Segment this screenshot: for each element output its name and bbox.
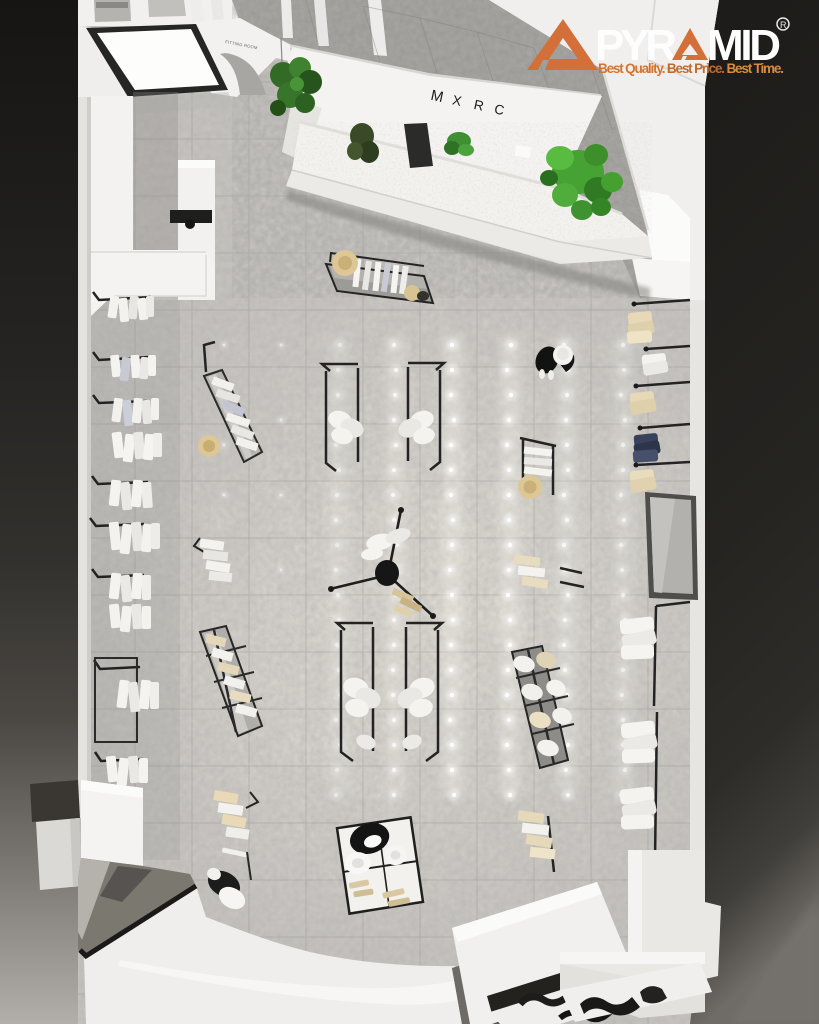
- svg-text:Best Quality. Best Price. Best: Best Quality. Best Price. Best Time.: [598, 61, 784, 76]
- svg-text:R: R: [780, 20, 787, 30]
